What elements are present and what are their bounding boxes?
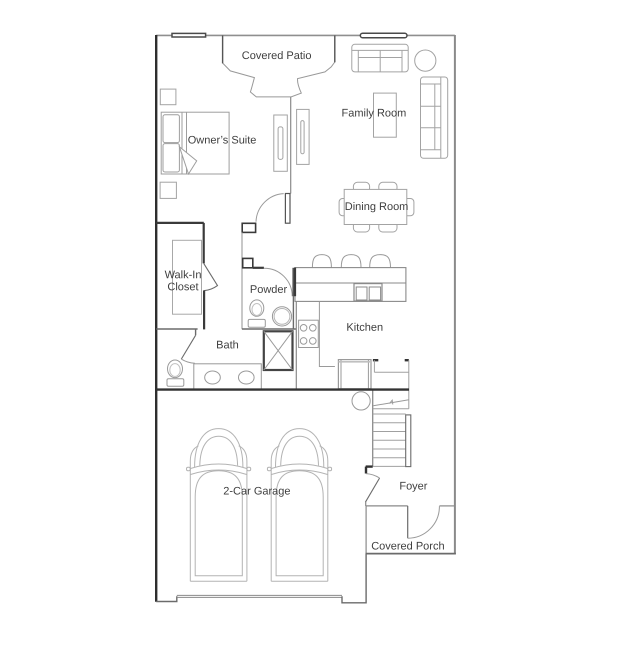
svg-text:Foyer: Foyer <box>399 481 427 493</box>
svg-text:Powder: Powder <box>250 284 288 296</box>
svg-text:Closet: Closet <box>167 281 198 293</box>
svg-text:2-Car Garage: 2-Car Garage <box>223 485 290 497</box>
svg-text:Dining Room: Dining Room <box>345 201 409 213</box>
svg-text:Kitchen: Kitchen <box>346 322 383 334</box>
svg-text:Owner’s Suite: Owner’s Suite <box>188 135 257 147</box>
svg-text:Walk-In: Walk-In <box>165 269 202 281</box>
svg-text:Covered Patio: Covered Patio <box>242 50 312 62</box>
svg-text:Bath: Bath <box>216 339 239 351</box>
svg-text:Covered Porch: Covered Porch <box>371 541 444 553</box>
svg-text:Family Room: Family Room <box>342 108 407 120</box>
